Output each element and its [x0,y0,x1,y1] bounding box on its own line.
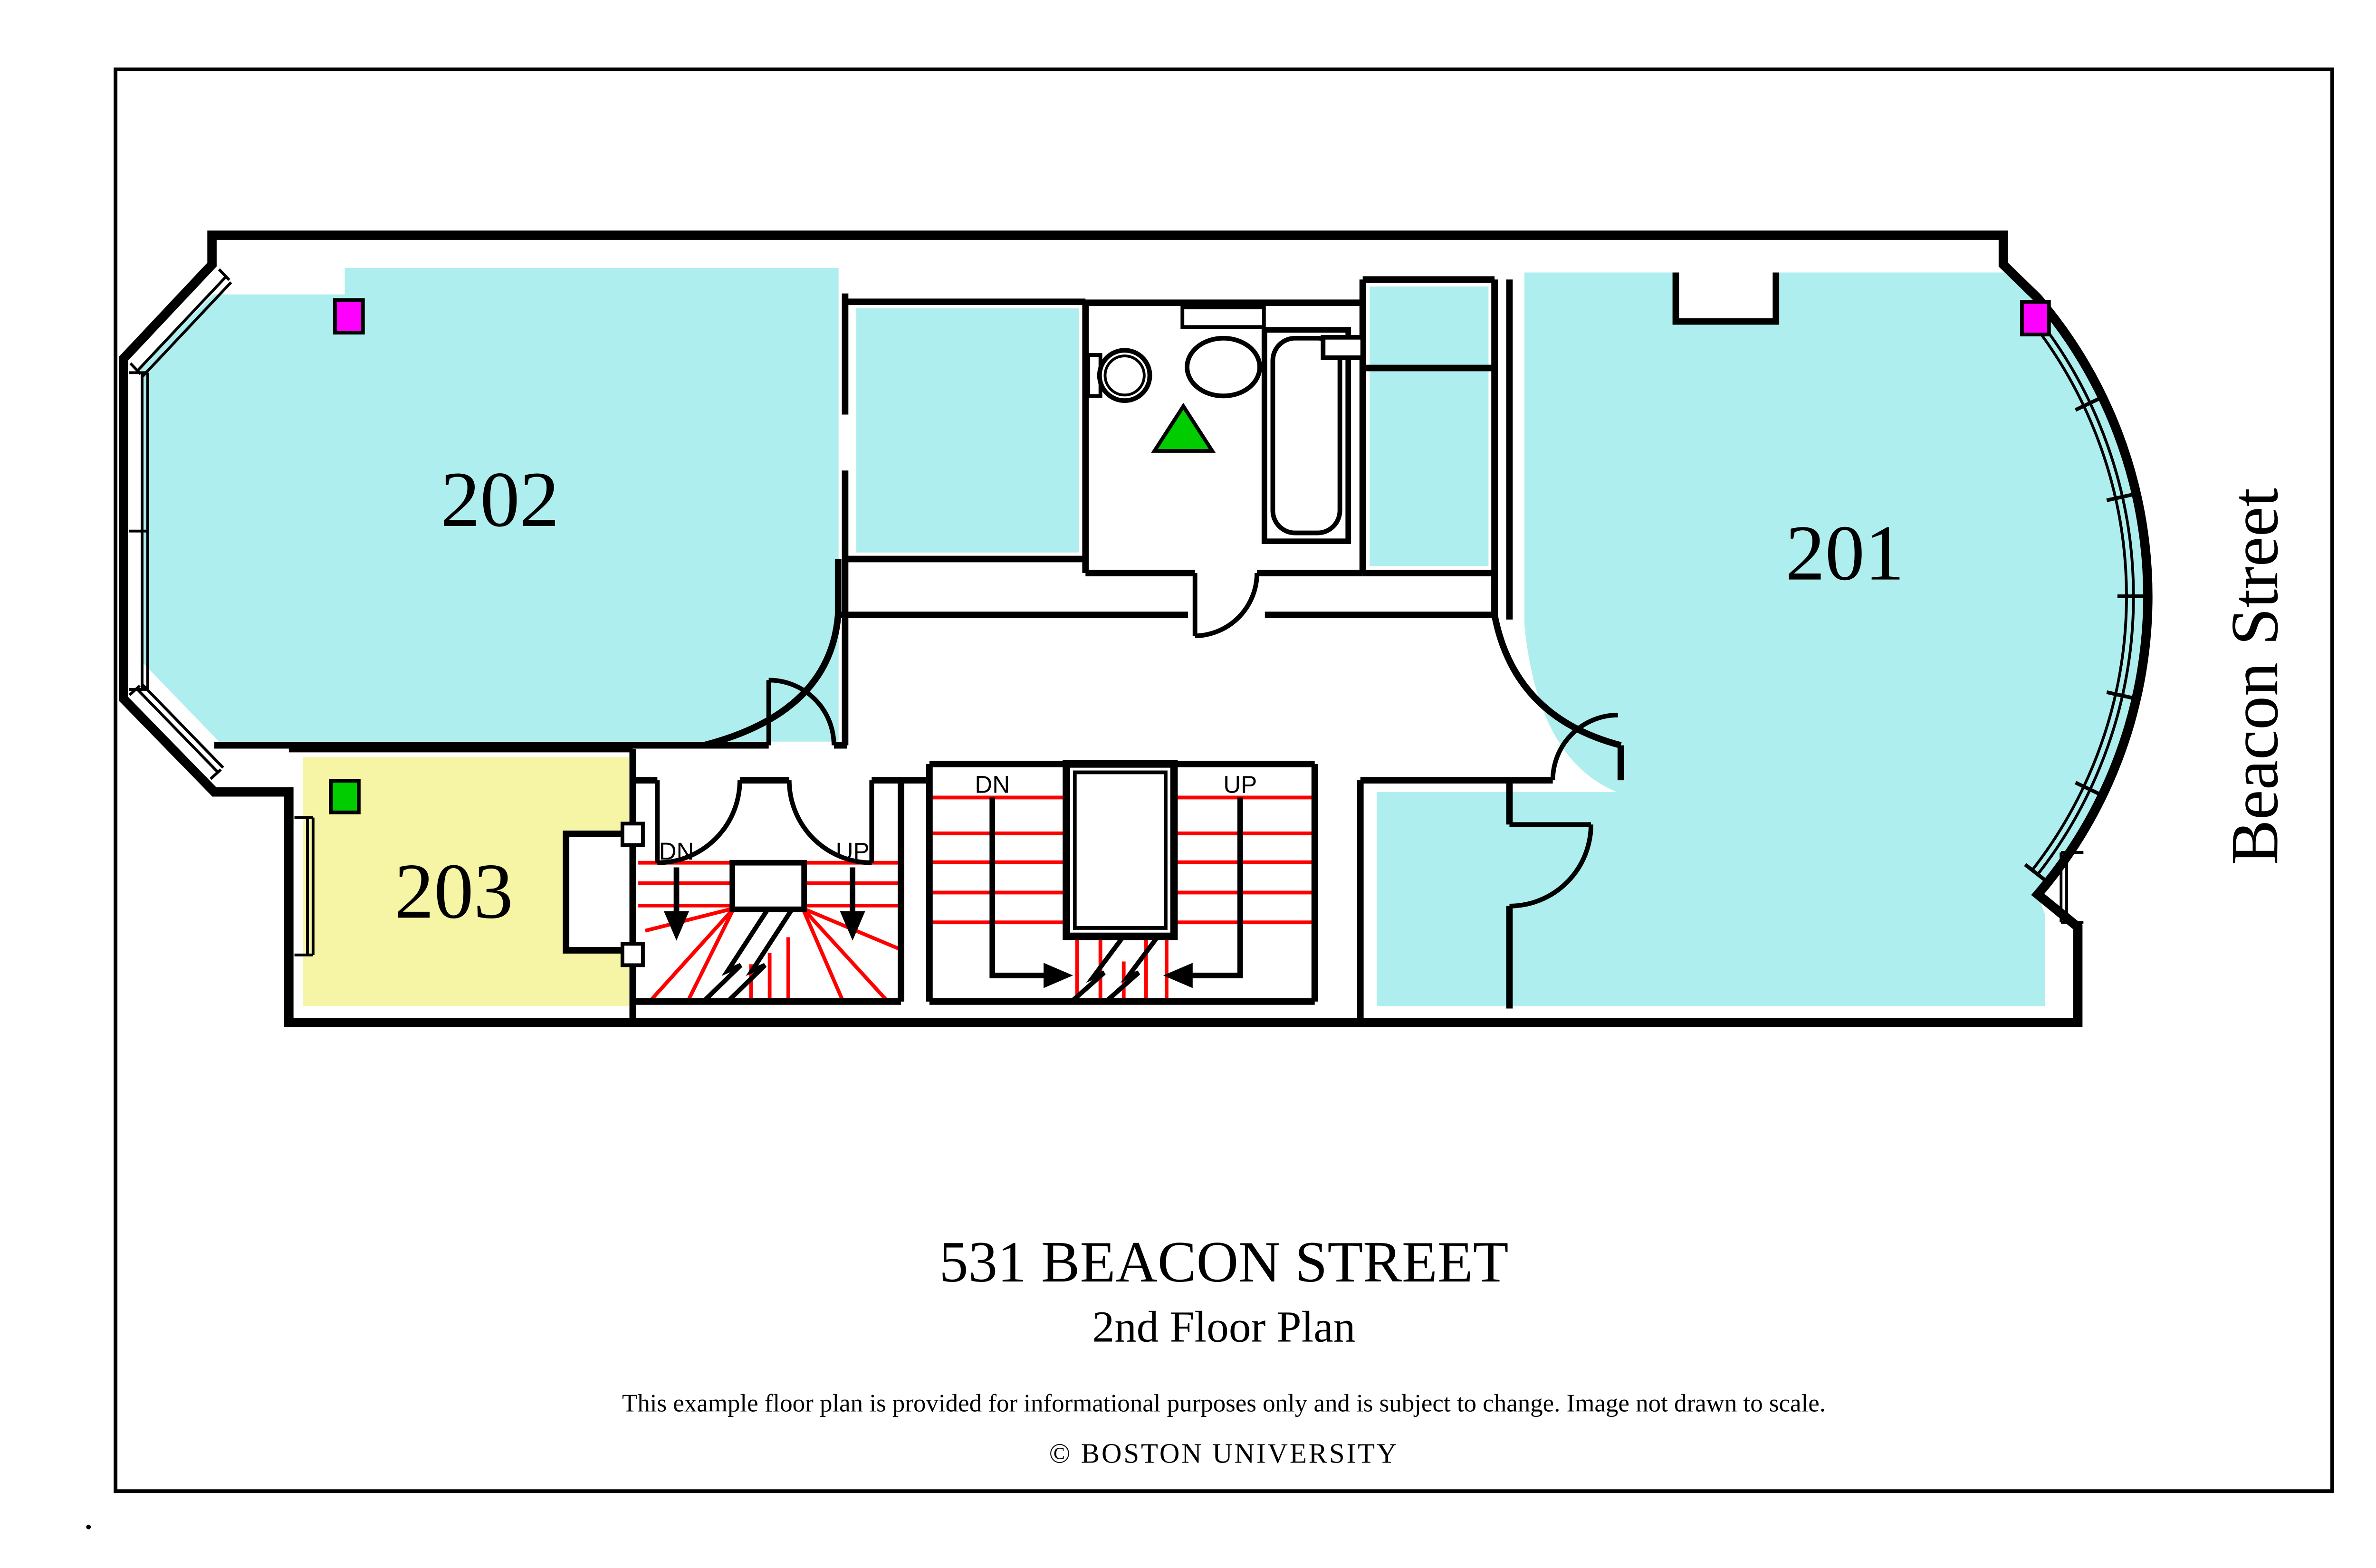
left-stair-landing [732,863,804,909]
street-label: Beacon Street [2217,488,2292,865]
closet-strip [1370,287,1488,566]
bathtub-icon [1273,338,1340,533]
green-square-room-203-icon [331,781,359,813]
wall-stub [1323,337,1362,358]
floor-plan-canvas: 202 201 203 DN UP DN UP Beacon Street 53… [0,0,2376,1537]
page-title: 531 BEACON STREET [939,1230,1508,1294]
left-stair-up-label: UP [836,838,870,865]
magenta-square-room-202-icon [335,300,363,333]
room-202-annex [856,308,1079,553]
center-stair-dn-label: DN [975,771,1010,798]
left-stair-dn-label: DN [659,838,694,865]
toilet-icon [1100,350,1150,401]
center-stair-up-label: UP [1223,771,1257,798]
page-subtitle: 2nd Floor Plan [1092,1303,1356,1352]
sink-icon [1187,338,1260,396]
copyright-text: © BOSTON UNIVERSITY [1049,1438,1399,1469]
sink-counter-icon [1182,307,1264,327]
magenta-square-room-201-icon [2022,302,2049,335]
closet-jamb-top [623,823,643,845]
center-stair-landing [1066,764,1174,937]
closet-jamb-bottom [623,944,643,965]
room-201-label: 201 [1785,509,1904,597]
disclaimer-text: This example floor plan is provided for … [622,1390,1826,1417]
stray-dot [86,1525,91,1530]
room-203-label: 203 [394,847,513,935]
room-202-label: 202 [441,456,559,544]
